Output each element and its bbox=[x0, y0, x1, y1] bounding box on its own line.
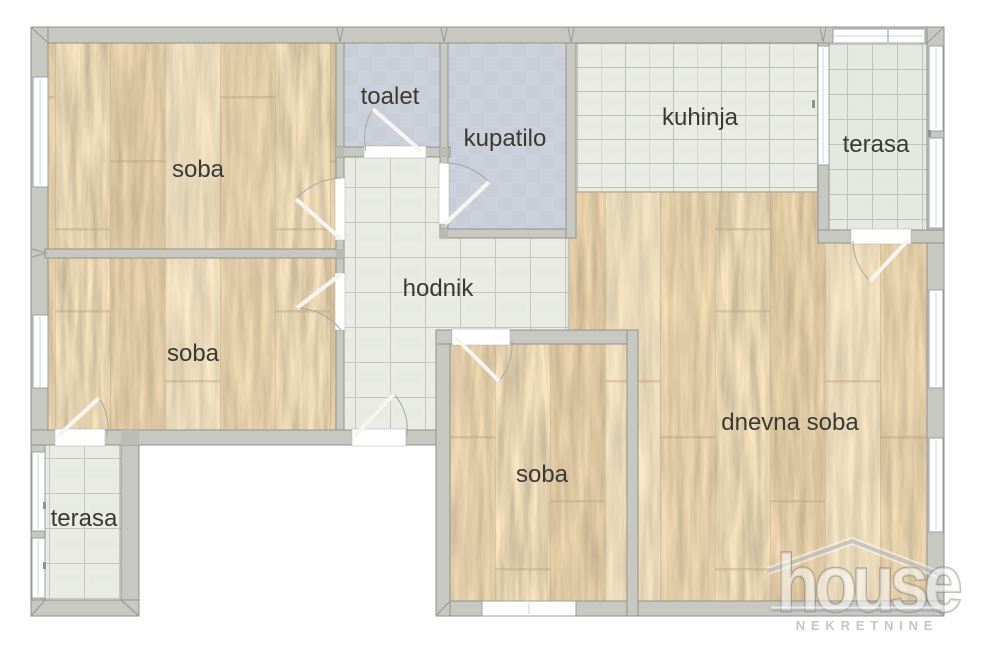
svg-text:kuhinja: kuhinja bbox=[662, 104, 739, 131]
svg-text:kupatilo: kupatilo bbox=[464, 125, 547, 152]
svg-text:terasa: terasa bbox=[843, 131, 910, 158]
svg-text:toalet: toalet bbox=[361, 83, 420, 110]
svg-text:NEKRETNINE: NEKRETNINE bbox=[796, 618, 939, 633]
svg-text:soba: soba bbox=[516, 461, 569, 488]
svg-text:terasa: terasa bbox=[51, 505, 118, 532]
svg-text:dnevna soba: dnevna soba bbox=[721, 409, 859, 436]
svg-text:hodnik: hodnik bbox=[403, 275, 475, 302]
svg-text:soba: soba bbox=[167, 340, 220, 367]
svg-text:soba: soba bbox=[172, 156, 225, 183]
svg-text:house: house bbox=[776, 538, 960, 628]
